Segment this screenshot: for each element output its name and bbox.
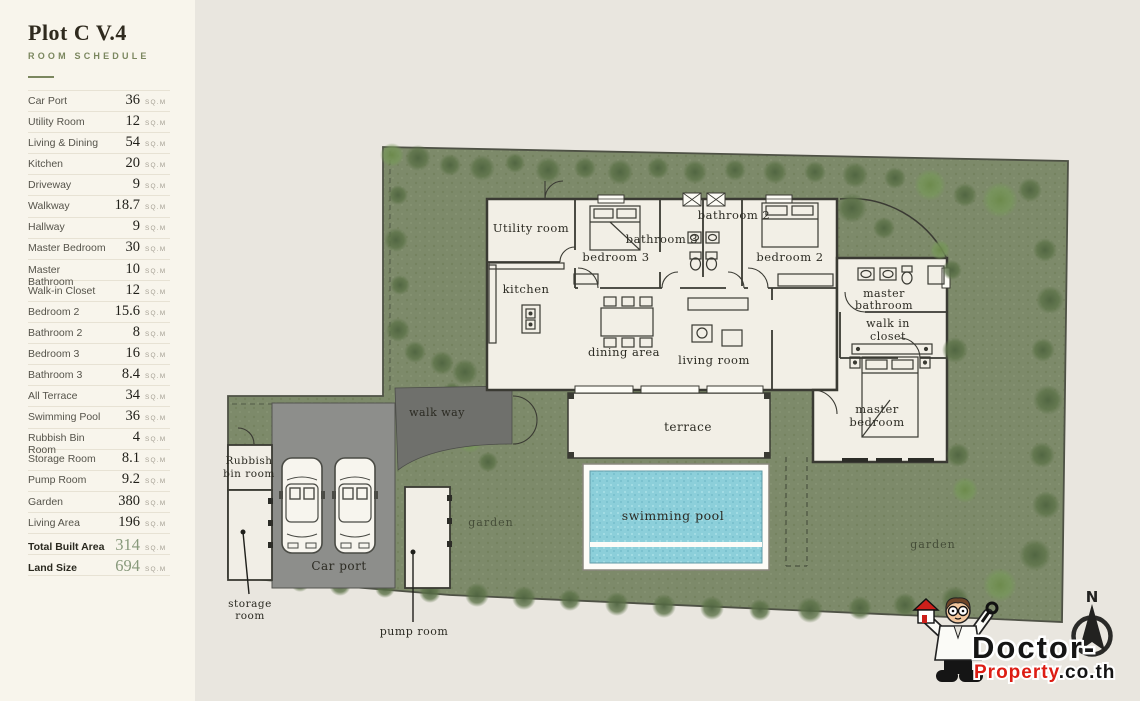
room-area-value: 36 — [108, 92, 140, 109]
room-name: Utility Room — [28, 116, 108, 128]
schedule-row: Walkway 18.7 SQ.M — [28, 196, 170, 217]
room-area-value: 314 — [108, 535, 140, 555]
schedule-row: Driveway 9 SQ.M — [28, 175, 170, 196]
area-unit: SQ.M — [145, 500, 170, 507]
area-unit: SQ.M — [145, 394, 170, 401]
schedule-row: Utility Room 12 SQ.M — [28, 112, 170, 133]
room-name: Living & Dining — [28, 137, 108, 149]
area-unit: SQ.M — [145, 162, 170, 169]
room-schedule-heading: ROOM SCHEDULE — [28, 51, 170, 61]
storage-room — [228, 490, 272, 580]
compass-north-label: N — [1086, 588, 1099, 606]
label-master-bedroom-2: bedroom — [849, 415, 904, 429]
label-kitchen: kitchen — [503, 282, 550, 296]
area-unit: SQ.M — [145, 436, 170, 443]
area-unit: SQ.M — [145, 352, 170, 359]
area-unit: SQ.M — [145, 521, 170, 528]
room-area-value: 54 — [108, 134, 140, 151]
schedule-row: Pump Room 9.2 SQ.M — [28, 471, 170, 492]
label-bathroom-2: bathroom 2 — [698, 208, 770, 222]
area-unit: SQ.M — [145, 415, 170, 422]
area-unit: SQ.M — [145, 183, 170, 190]
schedule-row: Bathroom 3 8.4 SQ.M — [28, 365, 170, 386]
area-unit: SQ.M — [145, 373, 170, 380]
schedule-row: Walk-in Closet 12 SQ.M — [28, 281, 170, 302]
room-name: Master Bedroom — [28, 242, 108, 254]
area-unit: SQ.M — [145, 566, 170, 573]
schedule-row: Living Area 196 SQ.M — [28, 513, 170, 534]
label-dining-area: dining area — [588, 345, 660, 359]
room-area-value: 20 — [108, 155, 140, 172]
pump-room — [405, 487, 450, 588]
schedule-row: All Terrace 34 SQ.M — [28, 386, 170, 407]
area-unit: SQ.M — [145, 225, 170, 232]
label-garden-left: garden — [468, 516, 514, 529]
room-name: Swimming Pool — [28, 411, 108, 423]
room-area-value: 9.2 — [108, 471, 140, 488]
room-name: Land Size — [28, 562, 108, 574]
schedule-row: Total Built Area 314 SQ.M — [28, 534, 170, 555]
room-name: Bedroom 2 — [28, 306, 108, 318]
car-1 — [279, 458, 325, 553]
room-area-value: 694 — [108, 556, 140, 576]
room-name: Bathroom 2 — [28, 327, 108, 339]
label-bedroom-3: bedroom 3 — [582, 250, 649, 264]
area-unit: SQ.M — [145, 310, 170, 317]
room-area-value: 380 — [108, 493, 140, 510]
room-schedule-panel: Plot C V.4 ROOM SCHEDULE Car Port 36 SQ.… — [0, 0, 195, 701]
room-name: Total Built Area — [28, 541, 108, 553]
label-storage-room-2: room — [235, 610, 265, 622]
room-area-value: 12 — [108, 282, 140, 299]
room-schedule-list: Car Port 36 SQ.M Utility Room 12 SQ.M Li… — [28, 90, 170, 576]
room-name: Living Area — [28, 517, 108, 529]
area-unit: SQ.M — [145, 457, 170, 464]
room-area-value: 30 — [108, 239, 140, 256]
car-2 — [332, 458, 378, 553]
room-area-value: 4 — [108, 429, 140, 446]
room-area-value: 8.1 — [108, 450, 140, 467]
logo-word-suffix: .co.th — [1059, 662, 1116, 683]
area-unit: SQ.M — [145, 99, 170, 106]
room-area-value: 34 — [108, 387, 140, 404]
accent-underline — [28, 76, 54, 78]
schedule-row: Garden 380 SQ.M — [28, 492, 170, 513]
room-name: Garden — [28, 496, 108, 508]
schedule-row: Kitchen 20 SQ.M — [28, 154, 170, 175]
schedule-row: Hallway 9 SQ.M — [28, 218, 170, 239]
label-car-port: Car port — [311, 559, 366, 573]
label-garden-right: garden — [910, 538, 956, 551]
logo-word-black: Doctor- — [972, 630, 1096, 665]
logo-word-red: Property.co.th — [974, 662, 1115, 683]
room-area-value: 8.4 — [108, 366, 140, 383]
label-rubbish-bin-room-2: bin room — [223, 468, 275, 480]
label-storage-room-1: storage — [228, 598, 272, 610]
label-utility-room: Utility room — [493, 221, 569, 235]
room-area-value: 9 — [108, 218, 140, 235]
schedule-row: Master Bathroom 10 SQ.M — [28, 260, 170, 281]
schedule-row: Storage Room 8.1 SQ.M — [28, 450, 170, 471]
room-name: Walkway — [28, 200, 108, 212]
room-name: All Terrace — [28, 390, 108, 402]
label-walk-in-closet-1: walk in — [866, 317, 910, 330]
site-plan: Utility room kitchen bedroom 3 bathroom … — [195, 0, 1140, 701]
room-area-value: 18.7 — [108, 197, 140, 214]
label-bathroom-3: bathroom 3 — [626, 232, 698, 246]
schedule-row: Master Bedroom 30 SQ.M — [28, 239, 170, 260]
label-rubbish-bin-room-1: Rubbish — [225, 455, 272, 467]
room-area-value: 12 — [108, 113, 140, 130]
room-name: Pump Room — [28, 474, 108, 486]
schedule-row: Land Size 694 SQ.M — [28, 555, 170, 576]
room-name: Car Port — [28, 95, 108, 107]
area-unit: SQ.M — [145, 120, 170, 127]
room-area-value: 10 — [108, 261, 140, 278]
area-unit: SQ.M — [145, 289, 170, 296]
logo-word-red-text: Property — [974, 662, 1060, 683]
room-area-value: 196 — [108, 514, 140, 531]
room-name: Kitchen — [28, 158, 108, 170]
schedule-row: Rubbish Bin Room 4 SQ.M — [28, 429, 170, 450]
schedule-row: Bedroom 3 16 SQ.M — [28, 344, 170, 365]
schedule-row: Bedroom 2 15.6 SQ.M — [28, 302, 170, 323]
room-name: Bathroom 3 — [28, 369, 108, 381]
room-name: Walk-in Closet — [28, 285, 108, 297]
plot-title: Plot C V.4 — [28, 20, 170, 46]
area-unit: SQ.M — [145, 545, 170, 552]
label-walk-in-closet-2: closet — [870, 330, 906, 343]
label-swimming-pool: swimming pool — [622, 508, 724, 523]
room-area-value: 16 — [108, 345, 140, 362]
area-unit: SQ.M — [145, 478, 170, 485]
schedule-row: Swimming Pool 36 SQ.M — [28, 407, 170, 428]
floorplan-page: Plot C V.4 ROOM SCHEDULE Car Port 36 SQ.… — [0, 0, 1140, 701]
room-name: Storage Room — [28, 453, 108, 465]
schedule-row: Bathroom 2 8 SQ.M — [28, 323, 170, 344]
room-name: Hallway — [28, 221, 108, 233]
doctor-property-logo: Doctor- Property.co.th — [972, 630, 1115, 683]
area-unit: SQ.M — [145, 331, 170, 338]
room-area-value: 15.6 — [108, 303, 140, 320]
room-area-value: 8 — [108, 324, 140, 341]
area-unit: SQ.M — [145, 204, 170, 211]
area-unit: SQ.M — [145, 246, 170, 253]
label-terrace: terrace — [664, 420, 712, 434]
schedule-row: Car Port 36 SQ.M — [28, 91, 170, 112]
area-unit: SQ.M — [145, 268, 170, 275]
schedule-row: Living & Dining 54 SQ.M — [28, 133, 170, 154]
label-master-bathroom-2: bathroom — [855, 299, 913, 312]
room-area-value: 36 — [108, 408, 140, 425]
room-name: Bedroom 3 — [28, 348, 108, 360]
label-bedroom-2: bedroom 2 — [756, 250, 823, 264]
label-master-bedroom-1: master — [855, 402, 899, 416]
room-area-value: 9 — [108, 176, 140, 193]
area-unit: SQ.M — [145, 141, 170, 148]
room-name: Driveway — [28, 179, 108, 191]
label-pump-room: pump room — [380, 625, 449, 638]
floor-plan-svg: Utility room kitchen bedroom 3 bathroom … — [195, 0, 1140, 701]
label-walk-way: walk way — [409, 406, 465, 419]
label-living-room: living room — [678, 353, 750, 367]
